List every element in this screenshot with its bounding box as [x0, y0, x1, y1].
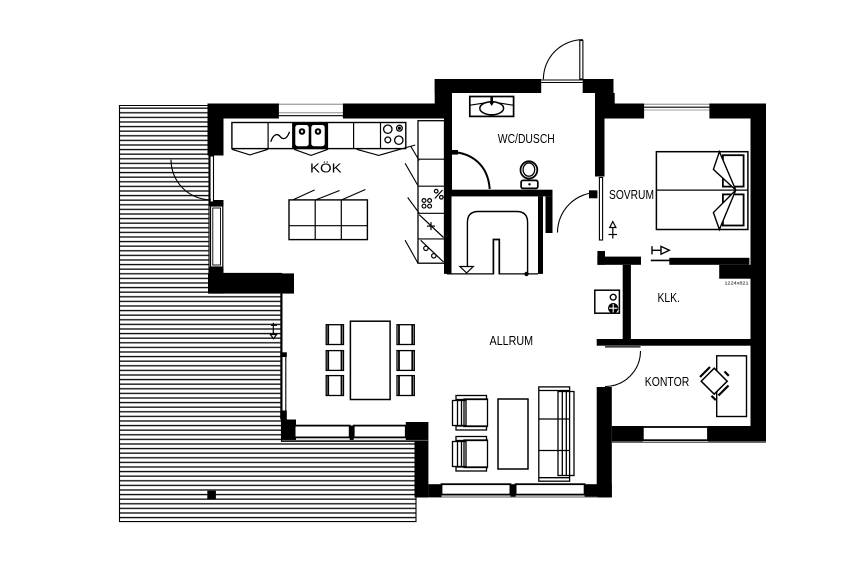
svg-text:KONTOR: KONTOR — [645, 374, 690, 389]
svg-text:WC/DUSCH: WC/DUSCH — [498, 131, 555, 146]
svg-text:SOVRUM: SOVRUM — [609, 187, 654, 202]
svg-text:KLK.: KLK. — [657, 290, 680, 305]
svg-text:KÖK: KÖK — [310, 161, 342, 176]
svg-text:1224x821: 1224x821 — [725, 280, 750, 285]
svg-text:ALLRUM: ALLRUM — [490, 333, 534, 348]
